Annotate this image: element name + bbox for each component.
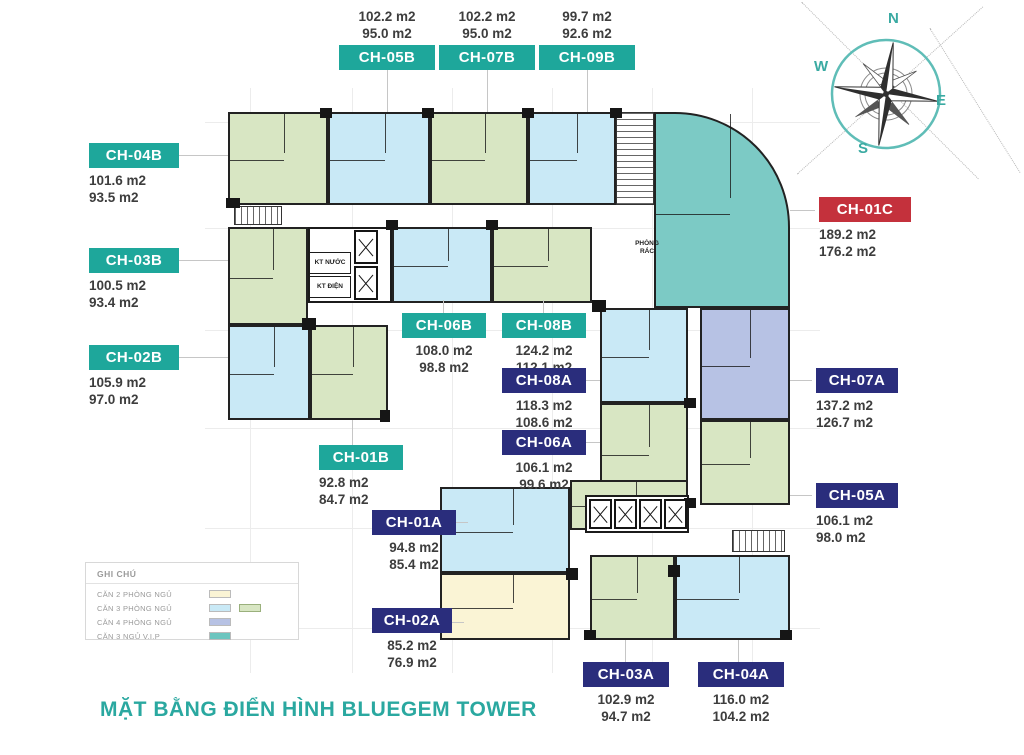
- plan-unit-ch05b: [328, 112, 430, 205]
- plan-unit-ch05a: [700, 420, 790, 505]
- connector-line: [175, 357, 228, 358]
- compass-graphic: [820, 12, 956, 168]
- connector-line: [790, 495, 812, 496]
- connector-line: [625, 640, 626, 662]
- elevator-shaft: [589, 499, 612, 529]
- unit-label-ch01a: CH-01A 94.8 m285.4 m2: [372, 510, 456, 573]
- area-net: 93.4 m2: [89, 294, 179, 311]
- compass-rose: N W E S: [820, 12, 956, 168]
- connector-line: [790, 210, 815, 211]
- wall-pier: [592, 300, 606, 312]
- wall-pier: [302, 318, 316, 330]
- plan-unit-ch03b: [228, 227, 308, 325]
- area-gross: 124.2 m2: [502, 342, 586, 359]
- wall-pier: [522, 108, 534, 118]
- unit-label-ch06b: CH-06B 108.0 m298.8 m2: [402, 313, 486, 376]
- legend-label: CĂN 4 PHÒNG NGỦ: [97, 618, 209, 627]
- plan-unit-ch01c-vip: [654, 112, 790, 308]
- unit-label-ch03b: CH-03B 100.5 m293.4 m2: [85, 248, 179, 311]
- unit-badge-ch03a: CH-03A: [583, 662, 669, 687]
- unit-badge-ch07a: CH-07A: [816, 368, 898, 393]
- unit-badge-ch04a: CH-04A: [698, 662, 784, 687]
- elevator-shaft: [639, 499, 662, 529]
- area-gross: 102.2 m2: [439, 8, 535, 25]
- connector-line: [452, 622, 464, 623]
- unit-label-ch05b: 102.2 m295.0 m2 CH-05B: [339, 8, 435, 70]
- unit-badge-ch03b: CH-03B: [89, 248, 179, 273]
- unit-label-ch03a: CH-03A 102.9 m294.7 m2: [583, 662, 669, 725]
- unit-badge-ch02b: CH-02B: [89, 345, 179, 370]
- connector-line: [586, 442, 600, 443]
- area-net: 84.7 m2: [319, 491, 403, 508]
- area-gross: 101.6 m2: [89, 172, 179, 189]
- connector-line: [443, 300, 444, 313]
- floorplan-poster: { "title": "MẶT BẰNG ĐIỂN HÌNH BLUEGEM T…: [0, 0, 1024, 755]
- unit-badge-ch05b: CH-05B: [339, 45, 435, 70]
- area-gross: 106.1 m2: [816, 512, 898, 529]
- unit-badge-ch09b: CH-09B: [539, 45, 635, 70]
- connector-line: [586, 380, 600, 381]
- wall-pier: [380, 410, 390, 422]
- area-gross: 116.0 m2: [698, 691, 784, 708]
- plan-unit-ch09b: [528, 112, 616, 205]
- elevator-shaft: [354, 230, 378, 264]
- area-net: 99.6 m2: [502, 476, 586, 493]
- unit-label-ch04a: CH-04A 116.0 m2104.2 m2: [698, 662, 784, 725]
- area-gross: 102.9 m2: [583, 691, 669, 708]
- unit-badge-ch01b: CH-01B: [319, 445, 403, 470]
- wall-pier: [566, 568, 578, 580]
- legend-row-2br: CĂN 2 PHÒNG NGỦ: [86, 587, 298, 601]
- connector-line: [738, 640, 739, 662]
- unit-label-ch09b: 99.7 m292.6 m2 CH-09B: [539, 8, 635, 70]
- unit-badge-ch08a: CH-08A: [502, 368, 586, 393]
- kt-dien-room: KT ĐIỆN: [309, 276, 351, 298]
- connector-line: [487, 68, 488, 112]
- elevator-shaft: [664, 499, 687, 529]
- area-net: 85.4 m2: [372, 556, 456, 573]
- connector-line: [387, 68, 388, 112]
- unit-badge-ch02a: CH-02A: [372, 608, 452, 633]
- area-gross: 94.8 m2: [372, 539, 456, 556]
- unit-label-ch07a: CH-07A 137.2 m2126.7 m2: [812, 368, 898, 431]
- legend: GHI CHÚ CĂN 2 PHÒNG NGỦ CĂN 3 PHÒNG NGỦ …: [85, 562, 299, 640]
- plan-unit-ch04a: [675, 555, 790, 640]
- area-gross: 108.0 m2: [402, 342, 486, 359]
- area-gross: 106.1 m2: [502, 459, 586, 476]
- wall-pier: [226, 198, 240, 208]
- connector-line: [790, 380, 812, 381]
- legend-row-3br: CĂN 3 PHÒNG NGỦ: [86, 601, 298, 615]
- legend-row-4br: CĂN 4 PHÒNG NGỦ: [86, 615, 298, 629]
- plan-unit-ch07a: [700, 308, 790, 420]
- plan-unit-ch06b: [392, 227, 492, 303]
- legend-label: CĂN 2 PHÒNG NGỦ: [97, 590, 209, 599]
- plan-unit-ch08a: [600, 308, 688, 403]
- plan-unit-ch04b: [228, 112, 328, 205]
- unit-label-ch08a: CH-08A 118.3 m2108.6 m2: [502, 368, 586, 431]
- unit-badge-ch07b: CH-07B: [439, 45, 535, 70]
- kt-nuoc-room: KT NƯỚC: [309, 252, 351, 274]
- kt-dien-label: KT ĐIỆN: [317, 283, 343, 291]
- legend-swatch-periwinkle: [209, 618, 231, 626]
- connector-line: [543, 300, 544, 313]
- legend-swatch-yellow: [209, 590, 231, 598]
- area-net: 108.6 m2: [502, 414, 586, 431]
- connector-line: [587, 68, 588, 112]
- unit-label-ch02b: CH-02B 105.9 m297.0 m2: [85, 345, 179, 408]
- plan-unit-ch03a: [590, 555, 675, 640]
- area-gross: 99.7 m2: [539, 8, 635, 25]
- area-net: 98.8 m2: [402, 359, 486, 376]
- unit-label-ch07b: 102.2 m295.0 m2 CH-07B: [439, 8, 535, 70]
- wall-pier: [486, 220, 498, 230]
- connector-line: [175, 155, 228, 156]
- area-net: 104.2 m2: [698, 708, 784, 725]
- wall-pier: [422, 108, 434, 118]
- unit-label-ch06a: CH-06A 106.1 m299.6 m2: [502, 430, 586, 493]
- wall-pier: [684, 398, 696, 408]
- area-gross: 85.2 m2: [372, 637, 452, 654]
- elevator-shaft: [354, 266, 378, 300]
- unit-label-ch02a: CH-02A 85.2 m276.9 m2: [372, 608, 452, 671]
- connector-line: [175, 260, 228, 261]
- area-net: 98.0 m2: [816, 529, 898, 546]
- compass-west-label: W: [814, 58, 828, 75]
- unit-badge-ch06a: CH-06A: [502, 430, 586, 455]
- unit-badge-ch08b: CH-08B: [502, 313, 586, 338]
- area-gross: 189.2 m2: [819, 226, 911, 243]
- plan-unit-ch01a: [440, 487, 570, 573]
- plan-unit-ch02a: [440, 573, 570, 640]
- stairs: [732, 530, 785, 552]
- legend-swatch-green: [239, 604, 261, 612]
- unit-badge-ch04b: CH-04B: [89, 143, 179, 168]
- phong-rac-label: PHÒNG RÁC: [628, 240, 666, 256]
- wall-pier: [780, 630, 792, 640]
- plan-unit-ch01b: [310, 325, 388, 420]
- unit-label-ch08b: CH-08B 124.2 m2112.1 m2: [502, 313, 586, 376]
- area-net: 95.0 m2: [339, 25, 435, 42]
- compass-east-label: E: [936, 92, 946, 109]
- area-gross: 137.2 m2: [816, 397, 898, 414]
- area-net: 97.0 m2: [89, 391, 179, 408]
- legend-label: CĂN 3 NGỦ V.I.P: [97, 632, 209, 641]
- unit-label-ch04b: CH-04B 101.6 m293.5 m2: [85, 143, 179, 206]
- unit-label-ch05a: CH-05A 106.1 m298.0 m2: [812, 483, 898, 546]
- elevator-shaft: [614, 499, 637, 529]
- legend-swatch-teal: [209, 632, 231, 640]
- page-title: MẶT BẰNG ĐIỂN HÌNH BLUEGEM TOWER: [100, 698, 537, 722]
- legend-title: GHI CHÚ: [86, 563, 298, 584]
- legend-swatch-blue: [209, 604, 231, 612]
- wall-pier: [584, 630, 596, 640]
- wall-pier: [668, 565, 680, 577]
- area-gross: 102.2 m2: [339, 8, 435, 25]
- unit-badge-ch01a: CH-01A: [372, 510, 456, 535]
- area-gross: 92.8 m2: [319, 474, 403, 491]
- area-net: 95.0 m2: [439, 25, 535, 42]
- unit-badge-ch06b: CH-06B: [402, 313, 486, 338]
- stairs: [234, 206, 282, 225]
- legend-row-vip: CĂN 3 NGỦ V.I.P: [86, 629, 298, 643]
- unit-badge-ch05a: CH-05A: [816, 483, 898, 508]
- unit-label-ch01c: CH-01C 189.2 m2176.2 m2: [815, 197, 911, 260]
- unit-label-ch01b: CH-01B 92.8 m284.7 m2: [315, 445, 403, 508]
- wall-pier: [320, 108, 332, 118]
- area-net: 76.9 m2: [372, 654, 452, 671]
- wall-pier: [610, 108, 622, 118]
- area-gross: 118.3 m2: [502, 397, 586, 414]
- compass-north-label: N: [888, 10, 899, 27]
- unit-badge-ch01c: CH-01C: [819, 197, 911, 222]
- area-gross: 105.9 m2: [89, 374, 179, 391]
- area-net: 94.7 m2: [583, 708, 669, 725]
- legend-label: CĂN 3 PHÒNG NGỦ: [97, 604, 209, 613]
- stairwell: [616, 112, 654, 205]
- kt-nuoc-label: KT NƯỚC: [315, 259, 346, 267]
- compass-south-label: S: [858, 140, 868, 157]
- area-net: 92.6 m2: [539, 25, 635, 42]
- plan-unit-ch07b: [430, 112, 528, 205]
- area-net: 93.5 m2: [89, 189, 179, 206]
- plan-unit-ch02b: [228, 325, 310, 420]
- wall-pier: [386, 220, 398, 230]
- area-gross: 100.5 m2: [89, 277, 179, 294]
- area-net: 176.2 m2: [819, 243, 911, 260]
- plan-unit-ch08b: [492, 227, 592, 303]
- connector-line: [352, 420, 353, 445]
- area-net: 126.7 m2: [816, 414, 898, 431]
- connector-line: [456, 522, 468, 523]
